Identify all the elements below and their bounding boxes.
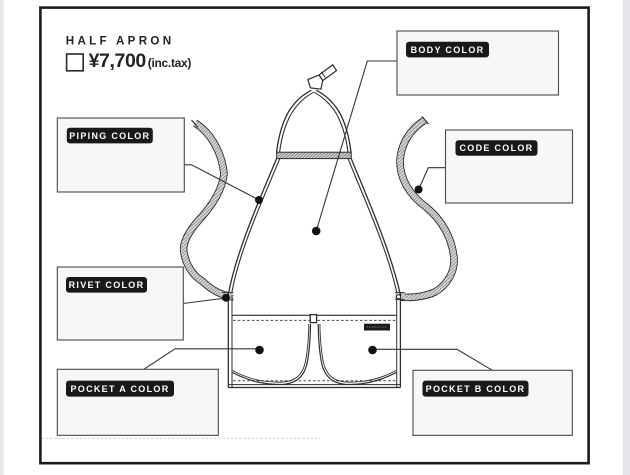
- svg-text:CODE COLOR: CODE COLOR: [459, 143, 533, 153]
- svg-text:BODY COLOR: BODY COLOR: [411, 45, 485, 55]
- svg-text:RIVET COLOR: RIVET COLOR: [69, 280, 145, 290]
- svg-text:(inc.tax): (inc.tax): [148, 56, 192, 70]
- svg-text:HALF APRON: HALF APRON: [66, 35, 175, 48]
- svg-text:¥7,700: ¥7,700: [89, 50, 147, 72]
- svg-text:POCKET B COLOR: POCKET B COLOR: [426, 384, 526, 394]
- svg-text:POCKET A COLOR: POCKET A COLOR: [70, 384, 169, 394]
- svg-text:PIPING COLOR: PIPING COLOR: [69, 131, 150, 141]
